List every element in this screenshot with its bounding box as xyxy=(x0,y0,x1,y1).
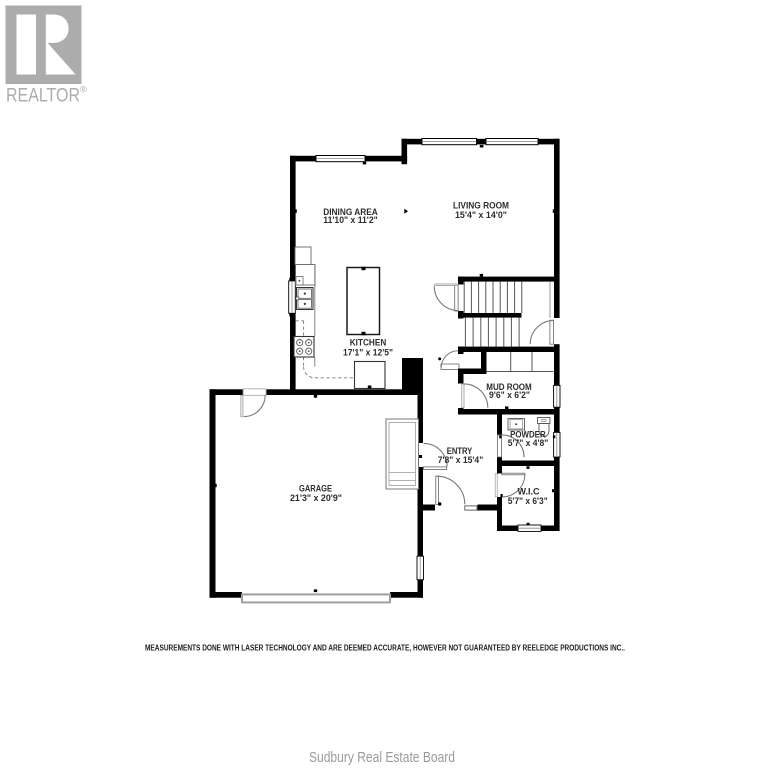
svg-text:17'1" x 12'5": 17'1" x 12'5" xyxy=(343,346,393,357)
svg-text:®: ® xyxy=(80,85,87,95)
svg-text:5'7" x 4'8": 5'7" x 4'8" xyxy=(508,437,549,448)
svg-text:9'6" x 6'2": 9'6" x 6'2" xyxy=(489,389,530,400)
svg-text:Sudbury Real Estate Board: Sudbury Real Estate Board xyxy=(309,750,455,766)
svg-text:REALTOR: REALTOR xyxy=(6,86,80,107)
svg-text:11'10" x 11'2": 11'10" x 11'2" xyxy=(323,214,378,225)
svg-text:5'7" x 6'3": 5'7" x 6'3" xyxy=(508,495,548,506)
svg-text:MEASUREMENTS DONE WITH LASER T: MEASUREMENTS DONE WITH LASER TECHNOLOGY … xyxy=(145,643,625,653)
svg-text:15'4" x 14'0": 15'4" x 14'0" xyxy=(455,209,507,220)
svg-text:7'8" x 15'4": 7'8" x 15'4" xyxy=(438,454,484,465)
svg-text:21'3" x 20'9": 21'3" x 20'9" xyxy=(290,492,342,503)
